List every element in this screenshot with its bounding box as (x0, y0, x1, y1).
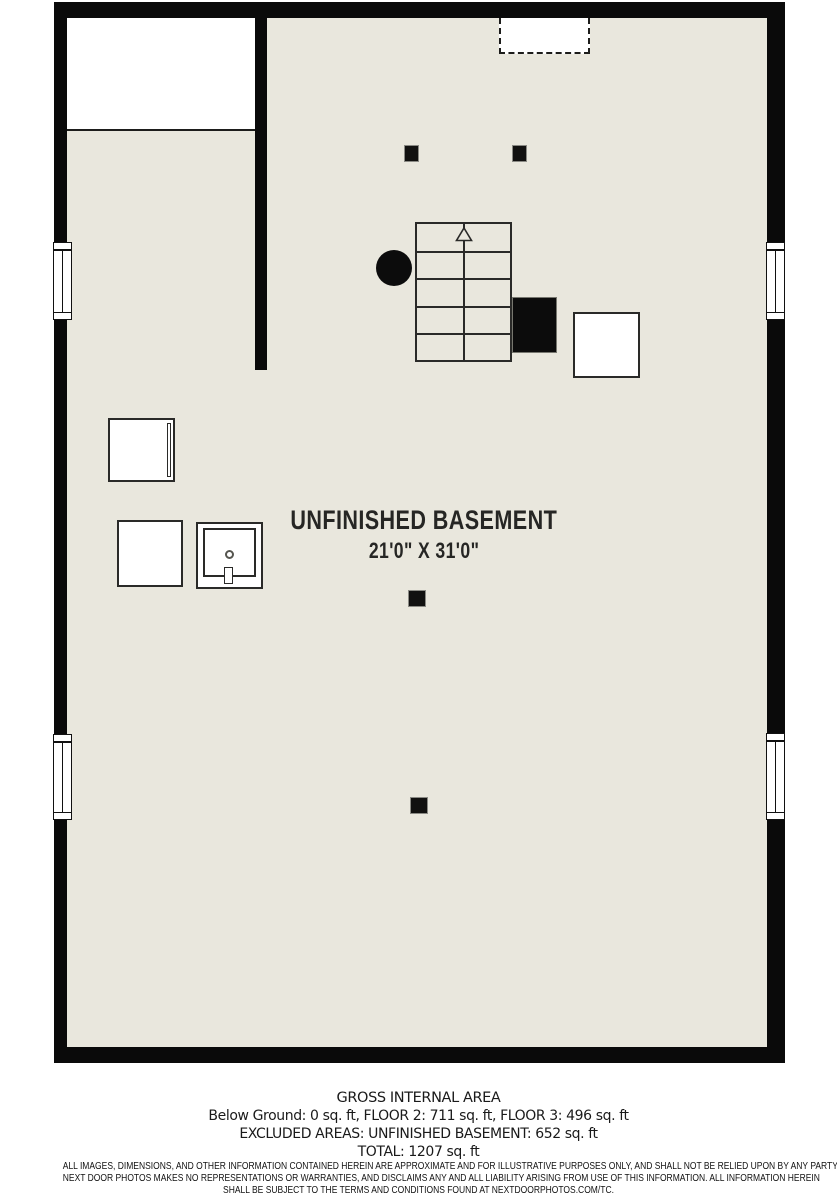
sink-faucet (224, 567, 233, 584)
area-summary: GROSS INTERNAL AREA Below Ground: 0 sq. … (0, 1089, 837, 1161)
closet-area (67, 18, 256, 131)
room-label-text: UNFINISHED BASEMENT (291, 505, 558, 536)
area-line-floors: Below Ground: 0 sq. ft, FLOOR 2: 711 sq.… (0, 1107, 837, 1125)
window-glass-line (775, 741, 777, 812)
staircase (415, 222, 512, 362)
disclaimer-line-3: SHALL BE SUBJECT TO THE TERMS AND CONDIT… (63, 1185, 774, 1197)
appliance-door-handle (167, 423, 171, 477)
legal-disclaimer: ALL IMAGES, DIMENSIONS, AND OTHER INFORM… (0, 1161, 837, 1197)
room-dimensions: 21'0" X 31'0" (67, 538, 767, 564)
window-left-top (53, 242, 72, 320)
window-glass-line (62, 742, 64, 812)
stair-center-line (463, 224, 465, 360)
support-post (411, 798, 427, 813)
area-line-total: TOTAL: 1207 sq. ft (0, 1143, 837, 1161)
support-post (409, 591, 425, 606)
pipe-column (376, 250, 412, 286)
window-glass-line (62, 250, 64, 312)
water-heater (573, 312, 640, 378)
dashed-opening (499, 18, 590, 54)
furnace (513, 298, 556, 352)
room-label: UNFINISHED BASEMENT (67, 505, 767, 536)
support-post (513, 146, 526, 161)
window-right-bottom (766, 733, 785, 820)
gross-internal-area-title: GROSS INTERNAL AREA (0, 1089, 837, 1107)
window-left-bottom (53, 734, 72, 820)
up-arrow-icon (455, 227, 473, 242)
disclaimer-line-2: NEXT DOOR PHOTOS MAKES NO REPRESENTATION… (63, 1173, 774, 1185)
interior-wall (255, 18, 267, 370)
support-post (405, 146, 418, 161)
window-glass-line (775, 250, 777, 312)
disclaimer-line-1: ALL IMAGES, DIMENSIONS, AND OTHER INFORM… (63, 1161, 774, 1173)
room-dimensions-text: 21'0" X 31'0" (369, 538, 480, 564)
window-right-top (766, 242, 785, 320)
appliance-box (108, 418, 175, 482)
floorplan-canvas: UNFINISHED BASEMENT 21'0" X 31'0" (54, 2, 785, 1063)
area-line-excluded: EXCLUDED AREAS: UNFINISHED BASEMENT: 652… (0, 1125, 837, 1143)
